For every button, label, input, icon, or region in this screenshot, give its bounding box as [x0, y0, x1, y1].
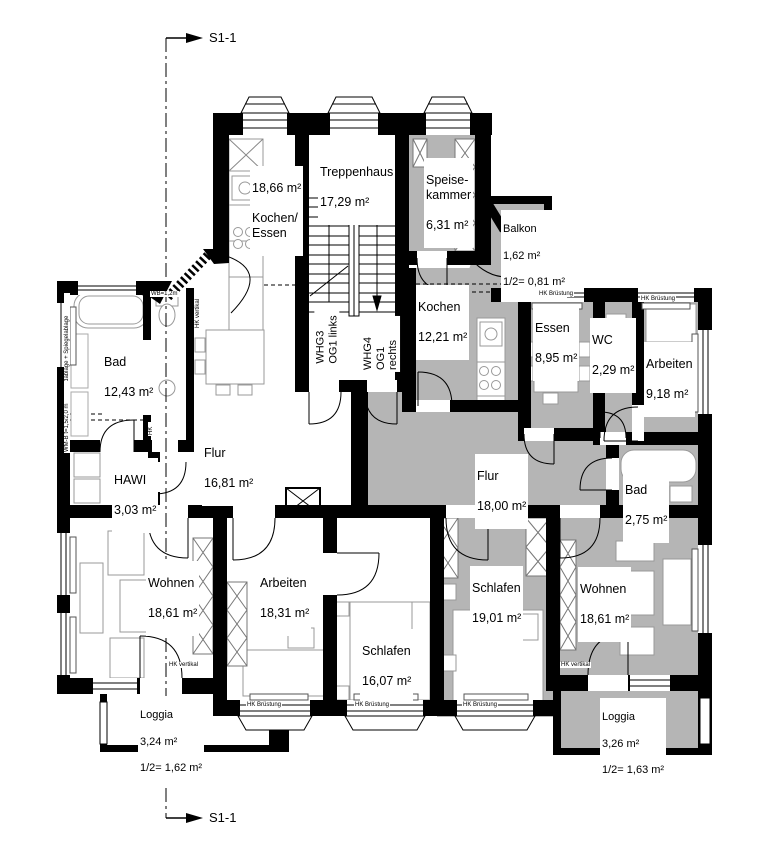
annotation-hk: HK	[148, 422, 154, 436]
section-arrow-bottom	[186, 813, 203, 823]
floorplan-page: S1-1 S1-1 18,66 m² Kochen/ Essen Treppen…	[0, 0, 759, 843]
room-area: 2,75 m²	[625, 513, 667, 528]
room-area: 12,43 m²	[104, 385, 153, 400]
annotation-hk-bruestung-2: HK Brüstung	[640, 296, 676, 302]
room-name: Bad	[625, 483, 667, 498]
room-area: 12,21 m²	[418, 330, 467, 345]
annotation-hk-vertikal-2: HK vertikal	[168, 662, 199, 668]
room-name: Wohnen	[148, 576, 197, 591]
room-label-loggia-right: Loggia 3,26 m² 1/2= 1,63 m²	[600, 698, 666, 790]
room-label-wohnen-left: Wohnen 18,61 m²	[146, 561, 199, 636]
annotation-wb: WB=1,2m	[150, 291, 179, 297]
room-name: Treppenhaus	[320, 165, 393, 180]
room-area: 18,61 m²	[580, 612, 629, 627]
room-area: 18,61 m²	[148, 606, 197, 621]
room-label-schlafen-right: Schlafen 19,01 m²	[470, 566, 523, 641]
section-arrow-top	[186, 33, 203, 43]
room-area: 2,29 m²	[592, 363, 634, 378]
room-name: Speise- kammer	[426, 173, 471, 203]
room-name: Kochen	[418, 300, 467, 315]
room-label-schlafen-left: Schlafen 16,07 m²	[360, 629, 413, 704]
room-name: Bad	[104, 355, 153, 370]
apartment-label-whg3: WHG3 OG1 links	[314, 310, 339, 366]
annotation-wall-shelf: Wandablage + Spiegelablage	[64, 293, 70, 395]
annotation-hk-bruestung-5: HK Brüstung	[462, 702, 498, 708]
wc-fixtures-left	[156, 296, 178, 396]
room-name: Arbeiten	[646, 357, 693, 372]
room-label-flur-left: Flur 16,81 m²	[202, 431, 255, 506]
room-label-wohnen-right: Wohnen 18,61 m²	[578, 567, 631, 642]
room-name: WC	[592, 333, 634, 348]
section-label-top: S1-1	[209, 30, 236, 45]
room-name: Balkon	[503, 223, 565, 236]
annotation-hk-bruestung-1: HK Brüstung	[538, 291, 574, 297]
room-area: 1,62 m²	[503, 250, 565, 263]
room-label-hawi: HAWI 3,03 m²	[112, 458, 158, 533]
apartment-label-whg4: WHG4 OG1 rechts	[362, 316, 400, 372]
whg3-entry-door	[309, 392, 341, 424]
annotation-wm: WM-B t=1,5/2,0 m	[64, 381, 70, 453]
annotation-hk-vertikal-1: HK vertikal	[195, 293, 201, 329]
room-name: HAWI	[114, 473, 156, 488]
room-label-balkon: Balkon 1,62 m² 1/2= 0,81 m²	[501, 210, 567, 302]
room-label-essen: Essen 8,95 m²	[533, 306, 579, 381]
room-name: Flur	[477, 469, 526, 484]
desk-arbeiten-left	[243, 628, 331, 696]
room-area: 16,07 m²	[362, 674, 411, 689]
room-name: Arbeiten	[260, 576, 309, 591]
room-label-wc: WC 2,29 m²	[590, 318, 636, 393]
room-label-arbeiten-left: Arbeiten 18,31 m²	[258, 561, 311, 636]
room-label-speisekammer: Speise- kammer 6,31 m²	[424, 158, 473, 248]
room-label-loggia-left: Loggia 3,24 m² 1/2= 1,62 m²	[138, 696, 204, 788]
room-label-kochen: Kochen 12,21 m²	[416, 285, 469, 360]
room-label-bad-left: Bad 12,43 m²	[102, 340, 155, 415]
room-name: Wohnen	[580, 582, 629, 597]
hawi-appliances	[74, 453, 100, 503]
kitchen-counter-right	[477, 318, 505, 402]
room-label-bad-right: Bad 2,75 m²	[623, 468, 669, 543]
room-area: 18,00 m²	[477, 499, 526, 514]
annotation-hk-bruestung-3: HK Brüstung	[246, 702, 282, 708]
room-area: 18,31 m²	[260, 606, 309, 621]
room-area: 19,01 m²	[472, 611, 521, 626]
room-name: Kochen/ Essen	[252, 211, 301, 241]
stove-burner	[234, 228, 243, 237]
room-name: Essen	[535, 321, 577, 336]
room-label-treppenhaus: Treppenhaus 17,29 m²	[318, 150, 395, 225]
annotation-hk-bruestung-4: HK Brüstung	[354, 702, 390, 708]
room-label-kochen-essen: 18,66 m² Kochen/ Essen	[250, 166, 303, 256]
room-area: 3,24 m²	[140, 736, 202, 749]
room-name: Flur	[204, 446, 253, 461]
room-area: 17,29 m²	[320, 195, 393, 210]
room-area: 9,18 m²	[646, 387, 693, 402]
sofa-wohnen-left	[80, 531, 148, 678]
room-area: 18,66 m²	[252, 181, 301, 196]
room-area: 16,81 m²	[204, 476, 253, 491]
room-area: 3,26 m²	[602, 738, 664, 751]
room-name: Loggia	[140, 709, 202, 722]
section-label-bottom: S1-1	[209, 810, 236, 825]
room-label-arbeiten-right: Arbeiten 9,18 m²	[644, 342, 695, 417]
room-label-flur-right: Flur 18,00 m²	[475, 454, 528, 529]
room-name: Schlafen	[362, 644, 411, 659]
dining-table-left	[195, 330, 264, 395]
room-half-area: 1/2= 1,63 m²	[602, 764, 664, 777]
room-area: 8,95 m²	[535, 351, 577, 366]
room-half-area: 1/2= 1,62 m²	[140, 762, 202, 775]
room-area: 3,03 m²	[114, 503, 156, 518]
room-half-area: 1/2= 0,81 m²	[503, 276, 565, 289]
room-area: 6,31 m²	[426, 218, 471, 233]
annotation-hk-vertikal-3: HK vertikal	[560, 662, 591, 668]
room-name: Schlafen	[472, 581, 521, 596]
room-name: Loggia	[602, 711, 664, 724]
